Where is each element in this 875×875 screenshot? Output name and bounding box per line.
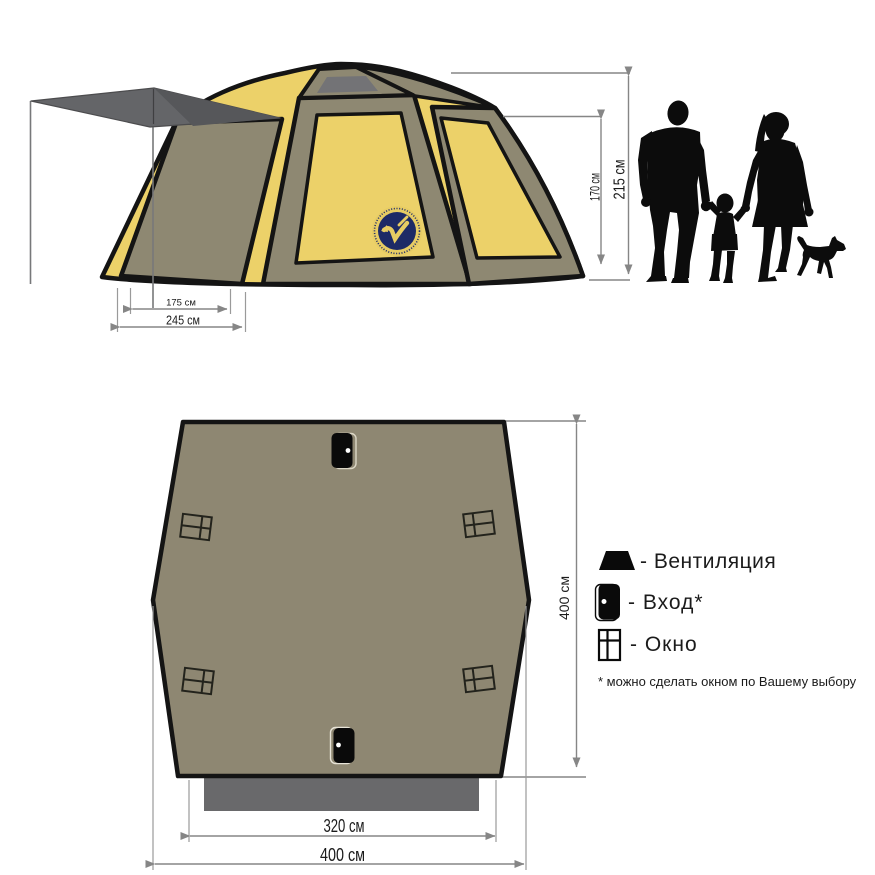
svg-text:* можно сделать окном по Вашем: * можно сделать окном по Вашему выбору [598, 674, 857, 689]
svg-text:320 см: 320 см [324, 816, 365, 836]
svg-text:215 см: 215 см [612, 160, 629, 200]
svg-text:- Вентиляция: - Вентиляция [640, 550, 776, 573]
svg-text:245 см: 245 см [166, 313, 200, 328]
svg-text:- Окно: - Окно [630, 633, 698, 656]
svg-text:400 см: 400 см [320, 845, 365, 865]
svg-text:400 см: 400 см [556, 576, 572, 620]
svg-text:170 см: 170 см [587, 173, 603, 201]
svg-text:175 см: 175 см [166, 298, 196, 309]
svg-text:- Вход*: - Вход* [628, 591, 704, 614]
